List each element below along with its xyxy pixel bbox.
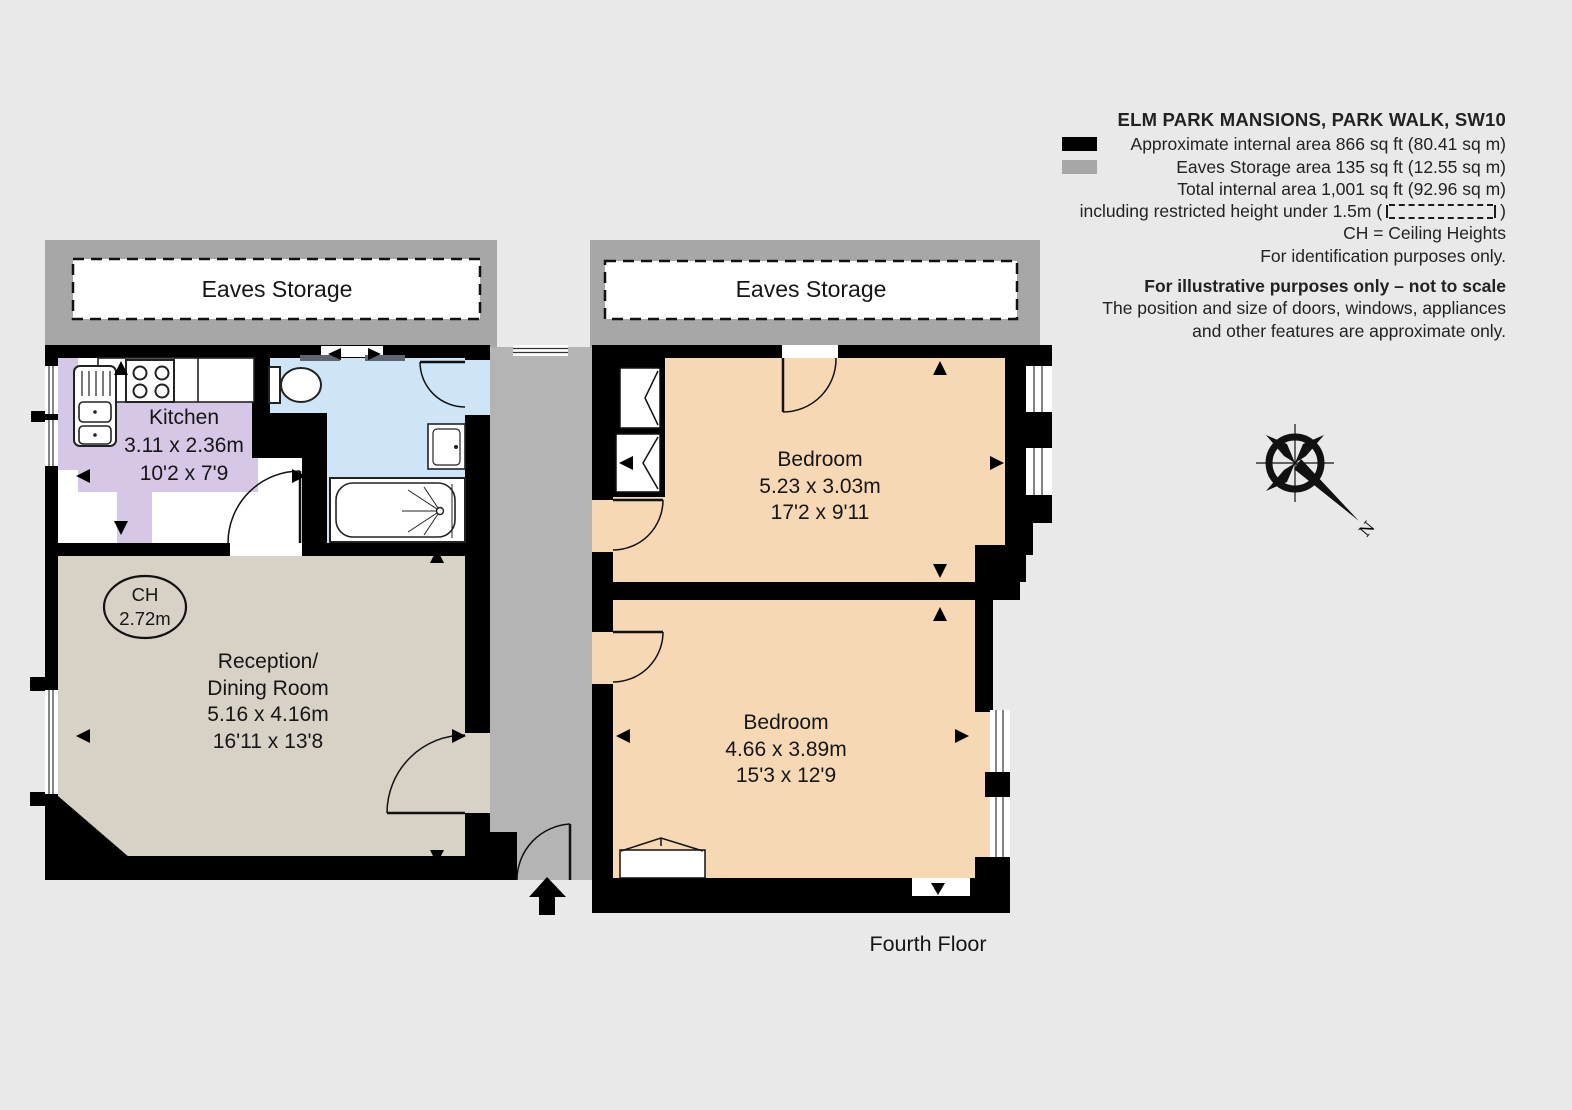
kitchen-metric: 3.11 x 2.36m — [124, 432, 244, 460]
hob-icon — [126, 360, 174, 402]
eaves-storage-right-label: Eaves Storage — [736, 276, 887, 303]
reception-imperial: 16'11 x 13'8 — [207, 729, 328, 756]
basin-icon — [428, 424, 465, 469]
bedroom-top-imperial: 17'2 x 9'11 — [759, 500, 880, 527]
floor-name-label: Fourth Floor — [869, 932, 986, 957]
bedroom-bottom-metric: 4.66 x 3.89m — [725, 737, 846, 764]
kitchen-imperial: 10'2 x 7'9 — [124, 460, 244, 488]
entrance-arrow-icon — [529, 877, 566, 915]
bedroom-bottom-name: Bedroom — [725, 710, 846, 737]
bedroom-bottom-label: Bedroom 4.66 x 3.89m 15'3 x 12'9 — [725, 710, 846, 790]
compass-icon: N — [1256, 424, 1379, 540]
toilet-icon — [269, 367, 321, 403]
reception-name-line1: Reception/ — [207, 649, 328, 676]
sink-icon — [74, 366, 116, 446]
reception-metric: 5.16 x 4.16m — [207, 702, 328, 729]
kitchen-label: Kitchen 3.11 x 2.36m 10'2 x 7'9 — [124, 404, 244, 488]
hallway — [488, 347, 592, 880]
bedroom-bottom-imperial: 15'3 x 12'9 — [725, 763, 846, 790]
bedroom-top-name: Bedroom — [759, 447, 880, 474]
compass-north-label: N — [1355, 517, 1379, 540]
reception-label: Reception/ Dining Room 5.16 x 4.16m 16'1… — [207, 649, 328, 755]
floorplan-page: ELM PARK MANSIONS, PARK WALK, SW10 Appro… — [0, 0, 1572, 1110]
ceiling-height-label: CH 2.72m — [119, 583, 170, 631]
eaves-storage-left-label: Eaves Storage — [202, 276, 353, 303]
kitchen-name: Kitchen — [124, 404, 244, 432]
ceiling-height-abbr: CH — [119, 583, 170, 607]
bedroom-top-label: Bedroom 5.23 x 3.03m 17'2 x 9'11 — [759, 447, 880, 527]
reception-name-line2: Dining Room — [207, 676, 328, 703]
bedroom-top-metric: 5.23 x 3.03m — [759, 474, 880, 501]
bathtub-icon — [330, 478, 465, 542]
ceiling-height-value: 2.72m — [119, 607, 170, 631]
floorplan-drawing: N — [0, 0, 1572, 1110]
